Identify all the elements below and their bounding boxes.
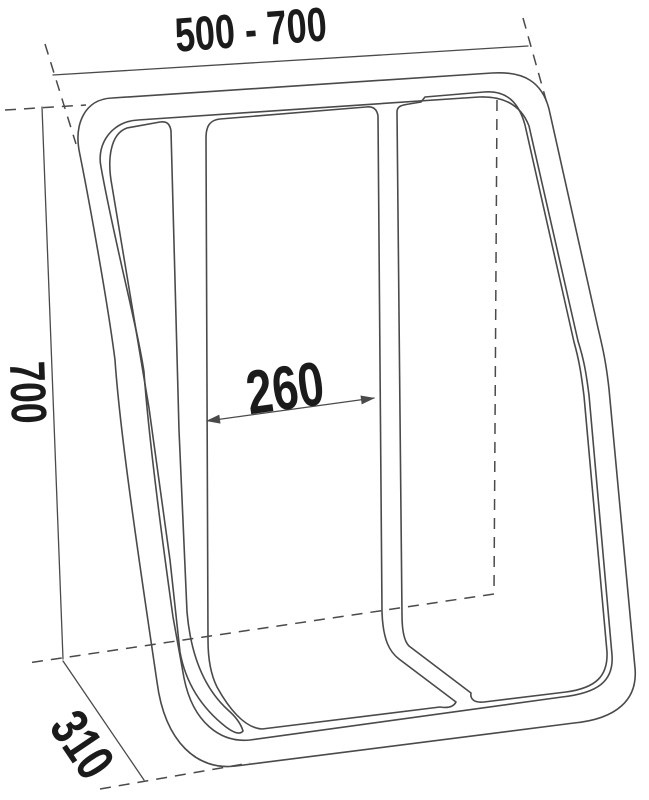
frame-outer-outline xyxy=(78,73,635,767)
extension-dashed-left-horizontal xyxy=(5,105,86,110)
frame-dimension-drawing: 500 - 700 700 260 310 xyxy=(0,0,649,800)
label-inner-width: 260 xyxy=(242,348,329,428)
technical-drawing-canvas: 500 - 700 700 260 310 xyxy=(0,0,649,800)
left-opening-outline xyxy=(110,122,243,733)
label-depth: 310 xyxy=(38,700,125,790)
middle-opening-outline xyxy=(206,107,456,729)
extension-dashed-top-left xyxy=(45,44,76,144)
right-opening-outline xyxy=(397,92,607,702)
arrowhead-right-icon xyxy=(361,396,376,405)
frame-inner-outline xyxy=(100,97,612,740)
label-height: 700 xyxy=(0,360,56,424)
arrowhead-left-icon xyxy=(206,415,221,424)
extension-dashed-top-right xyxy=(523,18,548,107)
hidden-edge-vertical-right xyxy=(494,100,497,594)
frame-outline-group xyxy=(78,73,635,767)
hidden-edge-bottom-back xyxy=(28,594,494,663)
label-width-range: 500 - 700 xyxy=(173,0,329,62)
